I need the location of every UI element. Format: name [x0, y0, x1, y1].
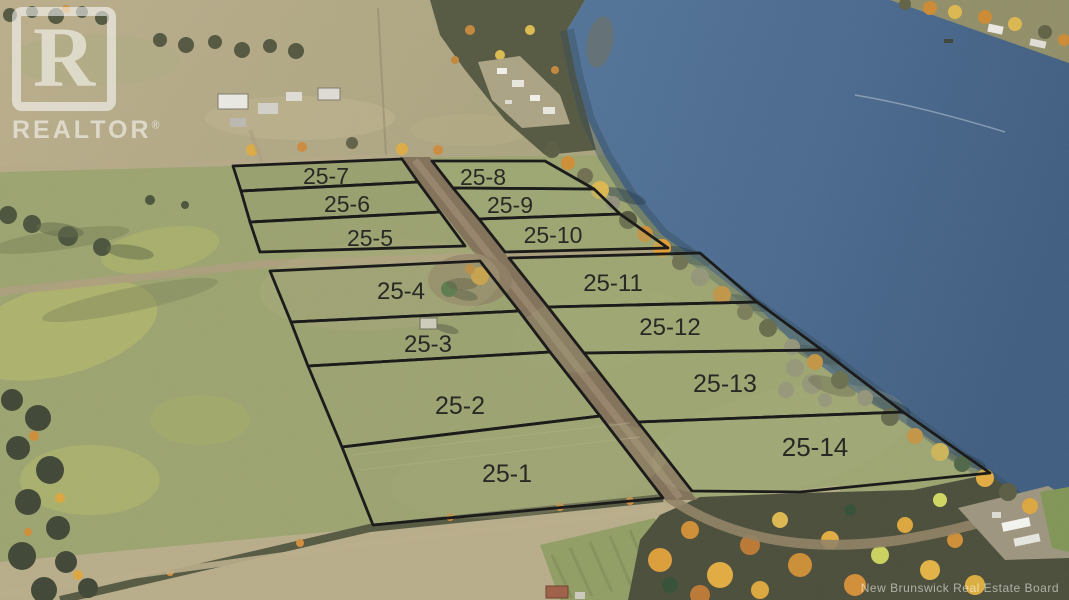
aerial-photo: 25-7 25-6 25-5 25-8 25-9 25-10 25-4 25-3… [0, 0, 1069, 600]
registered-symbol: ® [152, 120, 160, 132]
photo-grain [0, 0, 1069, 600]
realtor-logo-box: R [12, 7, 116, 111]
aerial-photo-canvas: 25-7 25-6 25-5 25-8 25-9 25-10 25-4 25-3… [0, 0, 1069, 600]
board-credit-watermark: New Brunswick Real Estate Board [861, 581, 1059, 595]
realtor-word-text: REALTOR [12, 116, 152, 144]
realtor-watermark: R REALTOR® [12, 7, 160, 145]
realtor-wordmark: REALTOR® [12, 116, 160, 145]
realtor-logo-r: R [33, 14, 95, 100]
